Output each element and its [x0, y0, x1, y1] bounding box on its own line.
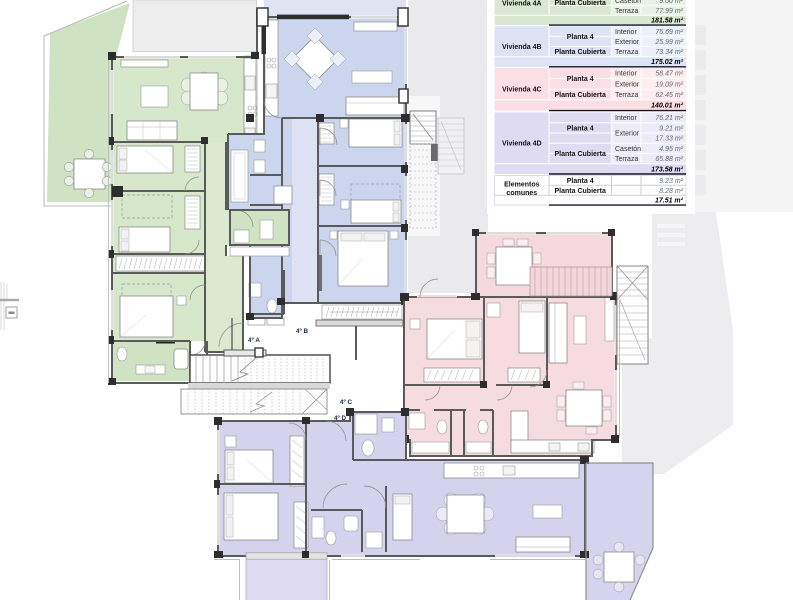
svg-text:Planta Cubierta: Planta Cubierta — [555, 92, 606, 99]
svg-text:Exterior: Exterior — [615, 81, 640, 88]
svg-text:4º C: 4º C — [340, 399, 353, 406]
svg-text:Planta 4: Planta 4 — [567, 34, 594, 41]
svg-text:77.99 m²: 77.99 m² — [655, 8, 683, 15]
svg-text:65.88 m²: 65.88 m² — [655, 156, 683, 163]
svg-text:Planta 4: Planta 4 — [567, 76, 594, 83]
svg-text:62.45 m²: 62.45 m² — [655, 92, 683, 99]
svg-text:19.09 m²: 19.09 m² — [655, 81, 683, 88]
svg-text:Exterior: Exterior — [615, 39, 640, 46]
svg-text:173.58 m²: 173.58 m² — [651, 166, 684, 173]
svg-text:4º A: 4º A — [248, 337, 260, 344]
svg-text:Terraza: Terraza — [615, 92, 638, 99]
svg-text:9.21 m²: 9.21 m² — [659, 125, 683, 132]
svg-text:Planta 4: Planta 4 — [567, 125, 594, 132]
svg-text:Exterior: Exterior — [615, 131, 640, 138]
svg-text:Planta Cubierta: Planta Cubierta — [555, 188, 606, 195]
svg-text:4.95 m²: 4.95 m² — [659, 146, 683, 153]
svg-text:181.58 m²: 181.58 m² — [651, 17, 684, 24]
svg-text:Interior: Interior — [615, 29, 637, 36]
svg-text:76.21 m²: 76.21 m² — [655, 115, 683, 122]
svg-text:25.99 m²: 25.99 m² — [654, 39, 683, 46]
svg-text:Interior: Interior — [615, 71, 637, 78]
svg-text:Vivienda 4C: Vivienda 4C — [502, 87, 542, 94]
svg-text:4º D: 4º D — [334, 415, 347, 422]
svg-text:9.00 m²: 9.00 m² — [659, 0, 683, 5]
svg-text:Casetón: Casetón — [615, 0, 641, 5]
svg-text:75.69 m²: 75.69 m² — [655, 29, 683, 36]
svg-text:comunes: comunes — [506, 190, 537, 197]
svg-text:8.28 m²: 8.28 m² — [659, 188, 683, 195]
svg-text:17.33 m²: 17.33 m² — [655, 136, 683, 143]
svg-text:Terraza: Terraza — [615, 8, 638, 15]
svg-text:Vivienda 4D: Vivienda 4D — [502, 141, 542, 148]
svg-text:Vivienda 4A: Vivienda 4A — [502, 0, 542, 7]
svg-text:Vivienda 4B: Vivienda 4B — [502, 44, 542, 51]
svg-text:17.51 m²: 17.51 m² — [655, 198, 684, 205]
svg-text:Casetón: Casetón — [615, 146, 641, 153]
svg-text:Terraza: Terraza — [615, 156, 638, 163]
svg-text:175.02 m²: 175.02 m² — [651, 59, 684, 66]
svg-text:Interior: Interior — [615, 115, 637, 122]
svg-text:Planta Cubierta: Planta Cubierta — [555, 49, 606, 56]
svg-text:Elementos: Elementos — [504, 182, 540, 189]
svg-text:Planta Cubierta: Planta Cubierta — [555, 151, 606, 158]
svg-text:4º B: 4º B — [296, 328, 309, 335]
svg-text:140.01 m²: 140.01 m² — [651, 103, 684, 110]
svg-text:Planta 4: Planta 4 — [567, 178, 594, 185]
svg-text:9.23 m²: 9.23 m² — [659, 178, 683, 185]
svg-text:73.34 m²: 73.34 m² — [655, 49, 683, 56]
svg-text:58.47 m²: 58.47 m² — [655, 71, 683, 78]
svg-text:Terraza: Terraza — [615, 49, 638, 56]
svg-text:Planta Cubierta: Planta Cubierta — [555, 0, 606, 7]
